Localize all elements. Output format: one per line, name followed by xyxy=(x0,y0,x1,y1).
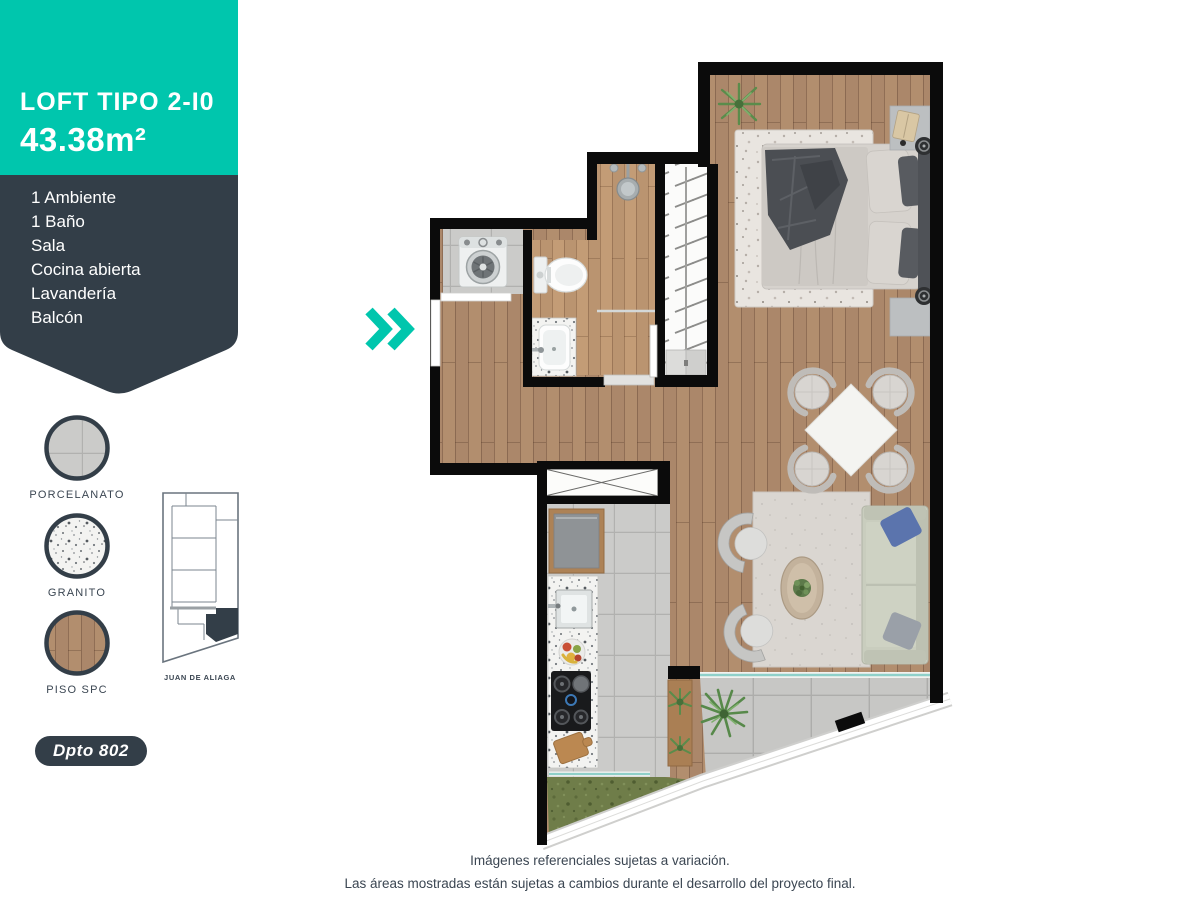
feature-item: Sala xyxy=(31,234,141,258)
keyplan: JUAN DE ALIAGA xyxy=(156,490,244,682)
granito-swatch xyxy=(42,511,112,581)
bathroom-door-leaf xyxy=(650,325,657,377)
features-panel: 1 Ambiente 1 Baño Sala Cocina abierta La… xyxy=(0,175,238,400)
laundry-door xyxy=(441,293,511,301)
sofa xyxy=(862,506,928,664)
header-banner: LOFT TIPO 2-I0 43.38m² xyxy=(0,0,238,175)
feature-item: Cocina abierta xyxy=(31,258,141,282)
double-chevron-right-icon xyxy=(364,306,416,357)
keyplan-label: JUAN DE ALIAGA xyxy=(156,673,244,682)
disclaimer-line1: Imágenes referenciales sujetas a variaci… xyxy=(0,849,1200,872)
bed xyxy=(762,142,930,292)
piso-spc-swatch xyxy=(42,608,112,678)
bathroom-sink xyxy=(532,318,576,376)
toilet xyxy=(534,257,587,293)
feature-item: 1 Baño xyxy=(31,210,141,234)
feature-item: Balcón xyxy=(31,306,141,330)
washing-machine xyxy=(459,237,507,287)
nightstand-top xyxy=(890,106,933,155)
disclaimer: Imágenes referenciales sujetas a variaci… xyxy=(0,849,1200,895)
duct-shaft xyxy=(545,469,658,496)
page: LOFT TIPO 2-I0 43.38m² 1 Ambiente 1 Baño… xyxy=(0,0,1200,900)
material-label: PORCELANATO xyxy=(15,489,139,501)
closet xyxy=(665,164,707,376)
material-porcelanato: PORCELANATO xyxy=(15,413,139,501)
fruit-bowl xyxy=(559,639,585,665)
bathroom-door xyxy=(604,375,654,385)
stove xyxy=(551,671,591,731)
planter-box xyxy=(668,680,692,766)
features-list: 1 Ambiente 1 Baño Sala Cocina abierta La… xyxy=(31,186,141,330)
fridge xyxy=(549,509,604,573)
feature-item: 1 Ambiente xyxy=(31,186,141,210)
porcelanato-swatch xyxy=(42,413,112,483)
floor-plan xyxy=(425,55,970,850)
loft-area: 43.38m² xyxy=(20,121,238,159)
coffee-table xyxy=(781,557,823,619)
table-plant xyxy=(793,579,811,597)
material-label: PISO SPC xyxy=(15,684,139,696)
keyplan-building-outline xyxy=(156,490,244,665)
disclaimer-line2: Las áreas mostradas están sujetas a camb… xyxy=(0,872,1200,895)
unit-badge: Dpto 802 xyxy=(35,736,147,766)
material-granito: GRANITO xyxy=(15,511,139,599)
material-piso-spc: PISO SPC xyxy=(15,608,139,696)
headboard xyxy=(918,142,930,292)
loft-title: LOFT TIPO 2-I0 xyxy=(20,88,238,117)
material-label: GRANITO xyxy=(15,587,139,599)
entry-door xyxy=(431,300,440,366)
feature-item: Lavandería xyxy=(31,282,141,306)
